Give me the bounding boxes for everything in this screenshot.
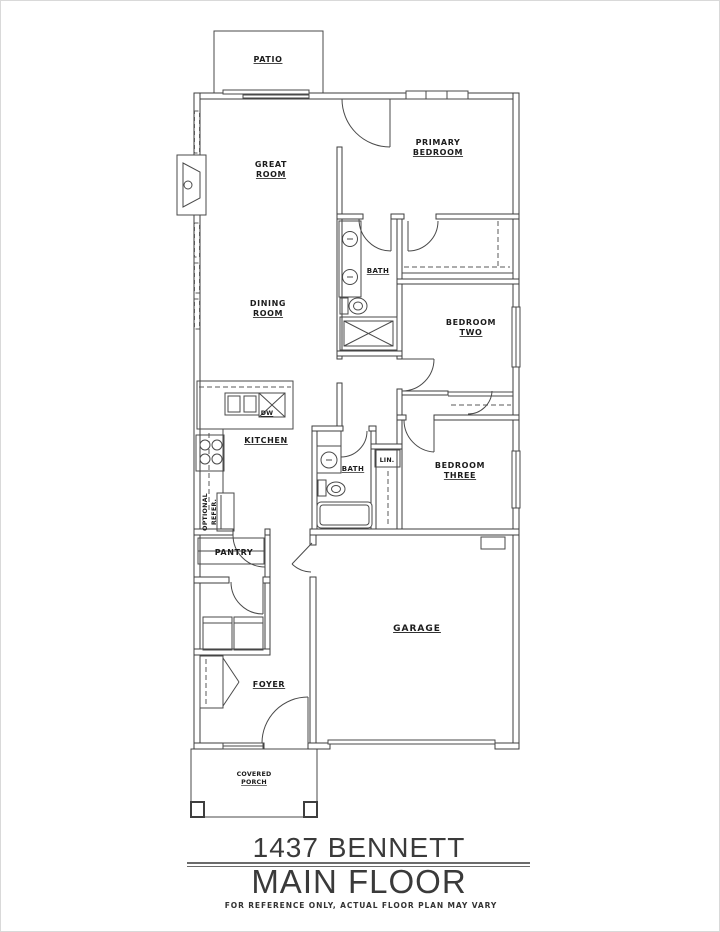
label-bedroom-three-2: THREE [444, 471, 476, 480]
label-great-room-1: GREAT [255, 160, 287, 169]
primary-bath-fixtures [339, 221, 397, 350]
label-optional-refer-1: OPTIONAL [202, 493, 209, 531]
plan-floor-name: MAIN FLOOR [251, 863, 466, 900]
label-hall-bath: BATH [342, 465, 364, 473]
label-great-room-2: ROOM [256, 170, 286, 179]
plan-disclaimer: FOR REFERENCE ONLY, ACTUAL FLOOR PLAN MA… [225, 901, 497, 910]
label-covered-porch-2: PORCH [241, 779, 267, 786]
label-patio: PATIO [254, 55, 283, 64]
label-bedroom-two-1: BEDROOM [446, 318, 496, 327]
label-dining-room-1: DINING [250, 299, 286, 308]
label-bedroom-three-1: BEDROOM [435, 461, 485, 470]
label-primary-bath: BATH [367, 267, 389, 275]
label-foyer: FOYER [253, 680, 285, 689]
hall-bath-fixtures [317, 446, 372, 528]
coat-closet [200, 656, 239, 708]
label-covered-porch-1: COVERED [237, 771, 272, 778]
primary-closet [402, 221, 513, 273]
floor-plan-drawing: PATIO GREAT ROOM PRIMARY BEDROOM BATH DI… [1, 1, 720, 932]
label-kitchen: KITCHEN [244, 436, 288, 445]
fireplace [177, 155, 206, 215]
laundry-appliances [203, 617, 263, 650]
plan-address: 1437 BENNETT [253, 832, 466, 863]
label-dishwasher: DW [261, 410, 274, 417]
label-optional-refer-2: REFER. [211, 499, 218, 525]
label-dining-room-2: ROOM [253, 309, 283, 318]
label-pantry: PANTRY [215, 548, 254, 557]
floor-plan-page: PATIO GREAT ROOM PRIMARY BEDROOM BATH DI… [0, 0, 720, 932]
label-bedroom-two-2: TWO [460, 328, 483, 337]
title-block: 1437 BENNETT MAIN FLOOR FOR REFERENCE ON… [187, 832, 530, 910]
label-primary-bedroom-1: PRIMARY [416, 138, 461, 147]
water-heater-platform [481, 537, 505, 549]
bedroom-two-closet [448, 392, 513, 405]
label-linen: LIN. [380, 457, 395, 464]
label-primary-bedroom-2: BEDROOM [413, 148, 463, 157]
label-garage: GARAGE [393, 624, 441, 634]
